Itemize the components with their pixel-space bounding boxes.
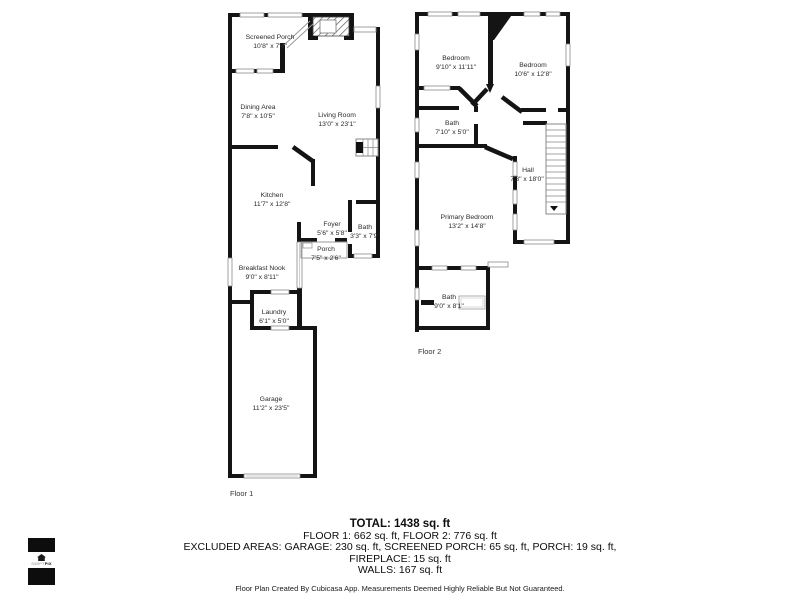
room-label-garage: Garage 11'2" x 23'5" bbox=[253, 396, 290, 412]
area-summary: TOTAL: 1438 sq. ft FLOOR 1: 662 sq. ft, … bbox=[0, 518, 800, 593]
logo-band: SWIFTPIX bbox=[28, 552, 55, 568]
stairs-floor2-icon bbox=[546, 124, 566, 214]
svg-text:7'5" x 2'6": 7'5" x 2'6" bbox=[311, 255, 341, 262]
svg-text:Bedroom: Bedroom bbox=[442, 55, 470, 62]
svg-text:11'2" x 23'5": 11'2" x 23'5" bbox=[253, 405, 290, 412]
svg-text:Porch: Porch bbox=[317, 246, 335, 253]
svg-text:13'0" x 23'1": 13'0" x 23'1" bbox=[318, 121, 356, 128]
room-label-porch: Porch 7'5" x 2'6" bbox=[311, 246, 341, 262]
logo-top-block bbox=[28, 538, 55, 552]
svg-text:Living Room: Living Room bbox=[318, 112, 356, 119]
logo-bottom-block bbox=[28, 568, 55, 585]
room-label-living-room: Living Room 13'0" x 23'1" bbox=[318, 112, 356, 128]
svg-text:Foyer: Foyer bbox=[323, 221, 341, 228]
floor-plan-page: Screened Porch 10'8" x 7'4" Dining Area … bbox=[0, 0, 800, 600]
room-label-bedroom-right: Bedroom 10'6" x 12'8" bbox=[514, 62, 552, 78]
svg-text:11'7" x 12'8": 11'7" x 12'8" bbox=[254, 201, 291, 208]
svg-text:Screened Porch: Screened Porch bbox=[246, 34, 295, 41]
floor-plan-drawing: Screened Porch 10'8" x 7'4" Dining Area … bbox=[0, 0, 800, 600]
svg-text:9'10" x 11'11": 9'10" x 11'11" bbox=[436, 64, 477, 71]
room-label-primary-bedroom: Primary Bedroom 13'2" x 14'8" bbox=[441, 214, 494, 230]
room-label-laundry: Laundry 6'1" x 5'0" bbox=[259, 309, 289, 325]
svg-text:7'10" x 5'0": 7'10" x 5'0" bbox=[435, 129, 469, 136]
svg-text:Bath: Bath bbox=[358, 224, 372, 231]
fireplace-icon bbox=[308, 17, 354, 40]
svg-text:10'8" x 7'4": 10'8" x 7'4" bbox=[253, 43, 287, 50]
swiftpix-logo: SWIFTPIX bbox=[28, 538, 55, 585]
excluded-areas-text: EXCLUDED AREAS: GARAGE: 230 sq. ft, SCRE… bbox=[0, 542, 800, 553]
floor2-label: Floor 2 bbox=[418, 347, 441, 356]
disclaimer-text: Floor Plan Created By Cubicasa App. Meas… bbox=[0, 584, 800, 593]
svg-text:7'3" x 18'0": 7'3" x 18'0" bbox=[510, 176, 544, 183]
svg-text:Bath: Bath bbox=[445, 120, 459, 127]
room-label-bath-floor1: Bath 3'3" x 7'9" bbox=[350, 224, 380, 240]
svg-text:9'0" x 8'1": 9'0" x 8'1" bbox=[434, 303, 464, 310]
svg-text:6'1" x 5'0": 6'1" x 5'0" bbox=[259, 318, 289, 325]
room-label-bedroom-left: Bedroom 9'10" x 11'11" bbox=[436, 55, 477, 71]
room-label-bath-upper: Bath 7'10" x 5'0" bbox=[435, 120, 469, 136]
svg-text:7'8" x 10'5": 7'8" x 10'5" bbox=[241, 113, 275, 120]
svg-text:Dining Area: Dining Area bbox=[240, 104, 275, 111]
floor2-plan: Bedroom 9'10" x 11'11" Bedroom 10'6" x 1… bbox=[415, 12, 570, 356]
room-label-foyer: Foyer 5'6" x 5'8" bbox=[317, 221, 347, 237]
svg-text:5'6" x 5'8": 5'6" x 5'8" bbox=[317, 230, 347, 237]
svg-text:Primary Bedroom: Primary Bedroom bbox=[441, 214, 494, 221]
floor1-label: Floor 1 bbox=[230, 489, 253, 498]
svg-text:Laundry: Laundry bbox=[262, 309, 287, 316]
svg-text:10'6" x 12'8": 10'6" x 12'8" bbox=[514, 71, 552, 78]
floor1-plan: Screened Porch 10'8" x 7'4" Dining Area … bbox=[228, 13, 380, 498]
walls-area-text: WALLS: 167 sq. ft bbox=[0, 565, 800, 576]
room-label-breakfast-nook: Breakfast Nook 9'0" x 8'11" bbox=[239, 265, 286, 281]
house-icon bbox=[37, 554, 46, 561]
svg-text:Breakfast Nook: Breakfast Nook bbox=[239, 265, 286, 272]
svg-text:Hall: Hall bbox=[522, 167, 534, 174]
logo-brand-text: SWIFTPIX bbox=[31, 561, 52, 566]
svg-text:3'3" x 7'9": 3'3" x 7'9" bbox=[350, 233, 380, 240]
room-label-dining-area: Dining Area 7'8" x 10'5" bbox=[240, 104, 275, 120]
room-label-kitchen: Kitchen 11'7" x 12'8" bbox=[254, 192, 291, 208]
svg-text:9'0" x 8'11": 9'0" x 8'11" bbox=[246, 274, 280, 281]
svg-text:Garage: Garage bbox=[260, 396, 283, 403]
stairs-floor1-icon bbox=[356, 139, 378, 156]
svg-text:13'2" x 14'8": 13'2" x 14'8" bbox=[448, 223, 486, 230]
svg-text:Kitchen: Kitchen bbox=[261, 192, 284, 199]
svg-text:Bath: Bath bbox=[442, 294, 456, 301]
svg-text:Bedroom: Bedroom bbox=[519, 62, 547, 69]
